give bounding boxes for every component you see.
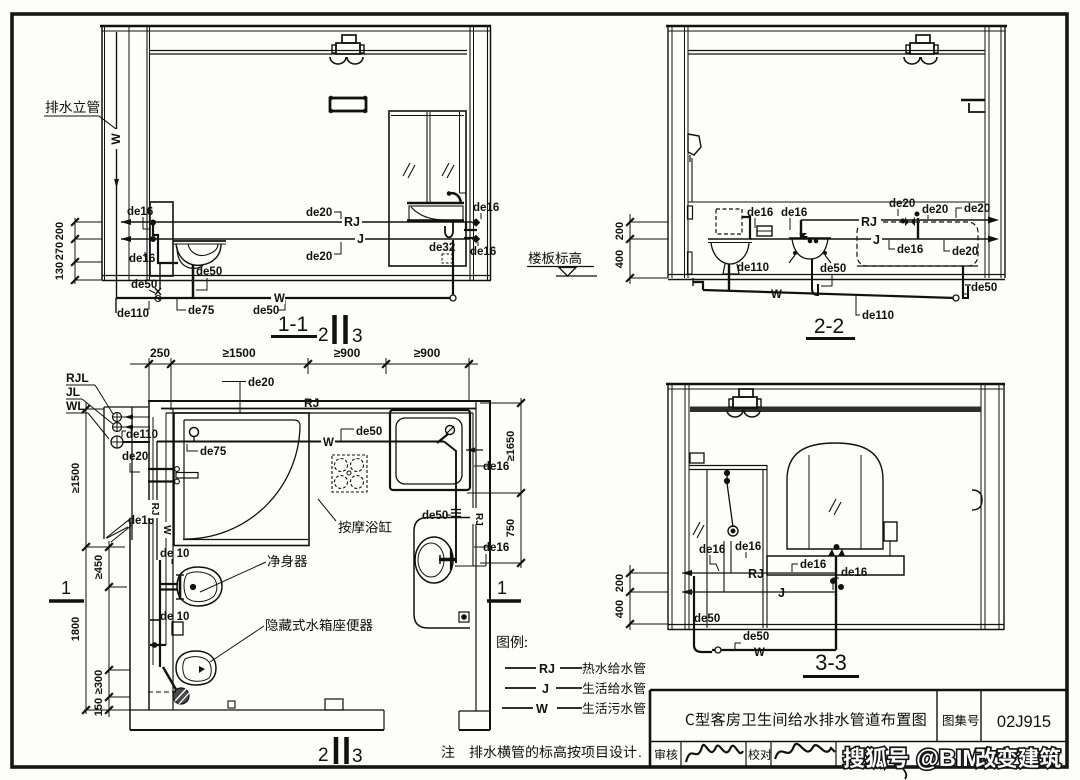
svg-text:de50: de50 (422, 510, 448, 522)
svg-text:de16: de16 (473, 202, 499, 214)
svg-text:≥300: ≥300 (93, 670, 105, 694)
svg-text:200: 200 (54, 222, 66, 240)
svg-text:750: 750 (505, 519, 517, 537)
svg-text:de16: de16 (129, 253, 155, 265)
svg-text:130: 130 (54, 262, 66, 280)
svg-text:400: 400 (614, 600, 626, 618)
svg-text:de50: de50 (971, 282, 997, 294)
svg-text:J: J (873, 233, 880, 247)
svg-text:de16: de16 (747, 207, 773, 219)
svg-text:WL: WL (66, 399, 85, 413)
svg-text:de16: de16 (483, 461, 509, 473)
svg-text:@BIM: @BIM (916, 745, 982, 771)
svg-text:RJ: RJ (748, 567, 764, 581)
svg-text:de20: de20 (306, 251, 332, 263)
svg-text:RJ: RJ (149, 503, 160, 516)
svg-text:3-3: 3-3 (815, 650, 847, 675)
svg-text:de20: de20 (248, 377, 274, 389)
svg-text:RJ: RJ (861, 215, 877, 229)
svg-text:de16: de16 (781, 207, 807, 219)
svg-text:J: J (357, 232, 364, 246)
svg-text:RJL: RJL (66, 371, 89, 385)
svg-text:1800: 1800 (70, 617, 82, 641)
svg-text:de50: de50 (743, 631, 769, 643)
svg-text:≥900: ≥900 (414, 346, 441, 360)
svg-text:de50: de50 (356, 426, 382, 438)
svg-text:de110: de110 (126, 429, 158, 441)
svg-text:1: 1 (497, 578, 507, 598)
svg-text:de16: de16 (735, 541, 761, 553)
svg-text:W: W (161, 525, 172, 535)
svg-text:de75: de75 (200, 446, 227, 458)
svg-text:02J915: 02J915 (997, 713, 1051, 731)
svg-text:≥900: ≥900 (334, 346, 361, 360)
svg-text:3: 3 (352, 326, 363, 347)
svg-text:W: W (536, 702, 548, 716)
svg-text:de32: de32 (429, 242, 455, 254)
svg-text:3: 3 (352, 746, 363, 767)
svg-text:RJ: RJ (539, 662, 555, 676)
svg-text:W: W (274, 293, 285, 305)
svg-text:J: J (542, 682, 549, 696)
svg-text:RJ: RJ (304, 396, 319, 410)
svg-text:de 10: de 10 (160, 611, 189, 623)
svg-text:de50: de50 (820, 263, 846, 275)
svg-text:de16: de16 (699, 544, 725, 556)
svg-text:2: 2 (318, 325, 329, 346)
svg-text:de20: de20 (306, 207, 332, 219)
svg-text:200: 200 (614, 574, 626, 592)
svg-text:150: 150 (93, 698, 105, 716)
svg-text:≥1500: ≥1500 (222, 346, 256, 360)
svg-text:de50: de50 (196, 266, 222, 278)
svg-text:de110: de110 (117, 308, 149, 320)
svg-text:.: . (638, 744, 642, 760)
svg-text:de20: de20 (889, 198, 915, 210)
svg-text:W: W (323, 437, 334, 449)
svg-text:200: 200 (614, 222, 626, 240)
svg-text:RJ: RJ (473, 513, 484, 526)
svg-text:1-1: 1-1 (278, 313, 308, 336)
svg-text:W: W (754, 647, 765, 659)
svg-text:1: 1 (61, 578, 71, 598)
svg-text:de20: de20 (922, 204, 948, 216)
svg-text:≥1500: ≥1500 (70, 463, 82, 494)
svg-text:de16: de16 (897, 244, 923, 256)
svg-text:de75: de75 (188, 305, 215, 317)
svg-text:270: 270 (54, 242, 66, 260)
svg-text:de20: de20 (952, 246, 978, 258)
svg-text:≥450: ≥450 (93, 555, 105, 579)
svg-text:de110: de110 (737, 262, 769, 274)
svg-text:JL: JL (66, 385, 80, 399)
svg-text:250: 250 (150, 346, 170, 360)
svg-text:de20: de20 (964, 203, 990, 215)
svg-text:de50: de50 (131, 279, 157, 291)
svg-text:2: 2 (318, 745, 329, 766)
svg-text:de20: de20 (122, 451, 148, 463)
svg-text:W: W (771, 289, 782, 301)
svg-text:de50: de50 (253, 305, 279, 317)
svg-text:de50: de50 (694, 613, 720, 625)
svg-text:de16: de16 (127, 206, 153, 218)
svg-text:de16: de16 (800, 559, 826, 571)
svg-text:de16: de16 (841, 567, 867, 579)
svg-text:de16: de16 (470, 246, 496, 258)
svg-text:400: 400 (614, 250, 626, 268)
svg-text:de16: de16 (483, 542, 509, 554)
svg-text:2-2: 2-2 (814, 315, 844, 338)
svg-text:J: J (778, 586, 785, 600)
svg-text:de 10: de 10 (160, 548, 189, 560)
svg-text:RJ: RJ (344, 215, 360, 229)
svg-text:de110: de110 (862, 310, 894, 322)
svg-text:≥1650: ≥1650 (505, 431, 517, 462)
svg-text:W: W (109, 133, 123, 145)
